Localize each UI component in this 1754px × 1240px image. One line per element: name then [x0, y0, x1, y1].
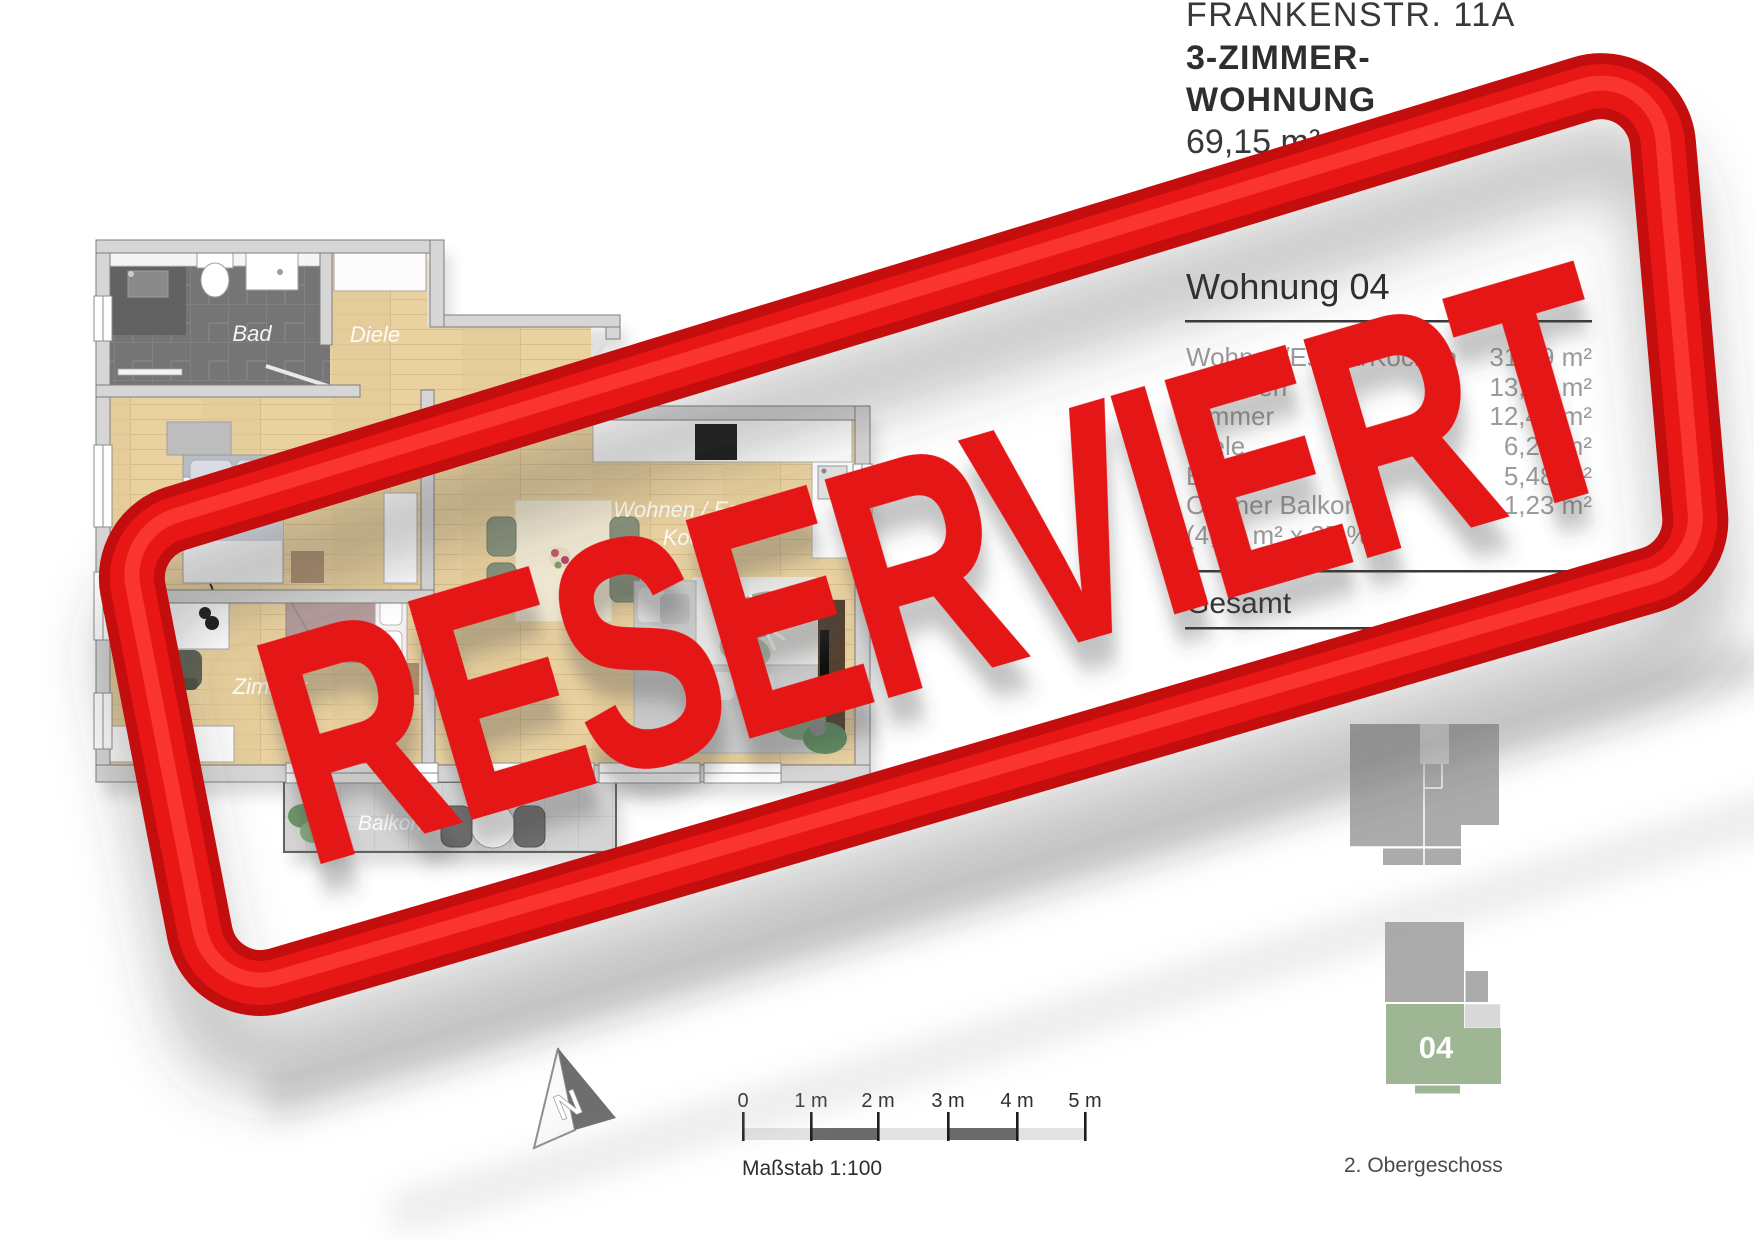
svg-text:04: 04: [1419, 1030, 1454, 1065]
svg-text:5 m: 5 m: [1068, 1090, 1101, 1112]
svg-text:Bad: Bad: [232, 321, 272, 346]
svg-text:3-ZIMMER-: 3-ZIMMER-: [1186, 39, 1371, 77]
svg-text:Maßstab 1:100: Maßstab 1:100: [742, 1157, 882, 1180]
svg-text:2. Obergeschoss: 2. Obergeschoss: [1344, 1154, 1503, 1177]
svg-text:WOHNUNG: WOHNUNG: [1186, 81, 1376, 119]
svg-text:3 m: 3 m: [931, 1090, 964, 1112]
svg-text:Diele: Diele: [350, 322, 400, 347]
svg-text:4 m: 4 m: [1000, 1090, 1033, 1112]
svg-text:FRANKENSTR. 11A: FRANKENSTR. 11A: [1186, 0, 1516, 34]
